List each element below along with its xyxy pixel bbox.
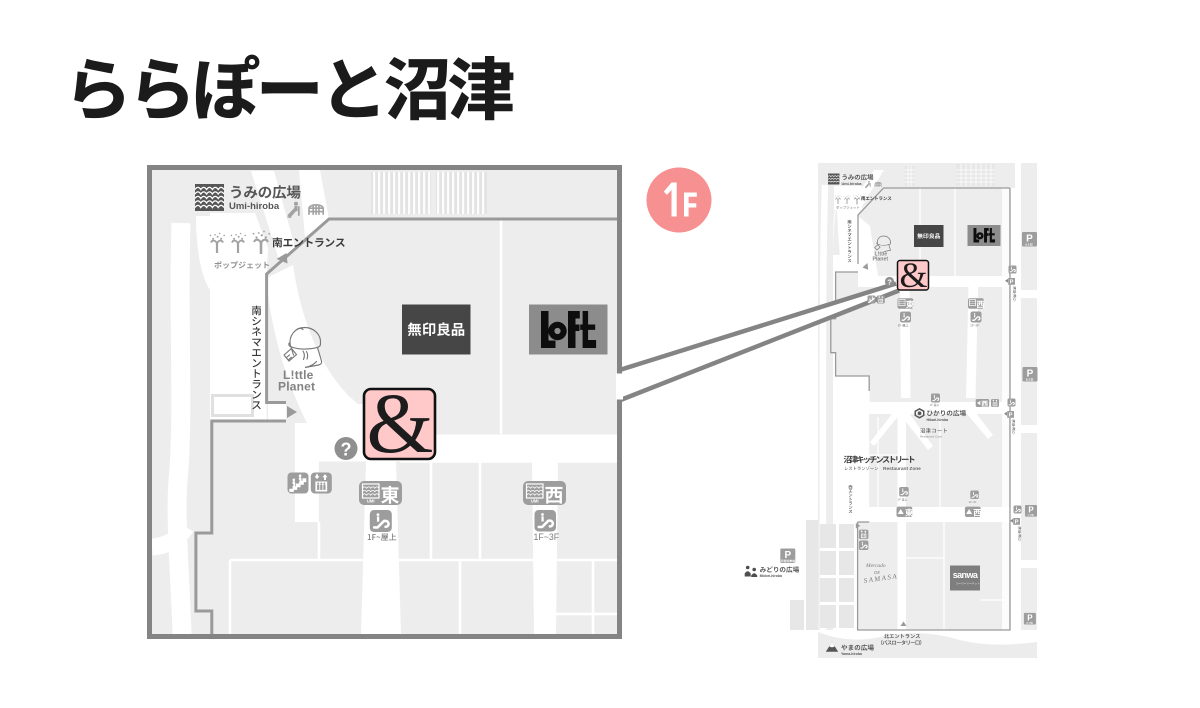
svg-text:UMI: UMI (367, 499, 375, 504)
svg-text:P: P (1026, 234, 1033, 245)
svg-text:sanwa: sanwa (953, 570, 979, 580)
svg-text:P: P (1009, 412, 1013, 418)
svg-text:UMI: UMI (531, 499, 539, 504)
svg-text:P: P (1027, 369, 1034, 380)
svg-text:P: P (1010, 279, 1014, 285)
svg-text:P: P (1028, 506, 1034, 515)
svg-text:&: & (367, 375, 434, 471)
svg-text:1F-3F: 1F-3F (970, 324, 980, 328)
svg-text:1F~3F: 1F~3F (534, 532, 560, 542)
svg-text:&: & (899, 255, 927, 295)
svg-text:?: ? (887, 278, 892, 287)
svg-text:P: P (1015, 519, 1019, 525)
svg-text:Yama-hiroba: Yama-hiroba (841, 652, 862, 656)
svg-text:Umi-hiroba: Umi-hiroba (229, 201, 280, 212)
svg-text:P: P (1027, 614, 1033, 623)
svg-text:?: ? (341, 440, 352, 460)
svg-text:Umi-hiroba: Umi-hiroba (842, 182, 863, 186)
svg-text:Midori-hiroba: Midori-hiroba (760, 574, 782, 578)
svg-text:Hikari-hiroba: Hikari-hiroba (927, 418, 949, 422)
svg-text:1F-3F: 1F-3F (969, 500, 977, 504)
svg-text:Planet: Planet (278, 380, 315, 394)
svg-text:Restaurant Court: Restaurant Court (920, 435, 942, 439)
svg-text:Restaurant Zone: Restaurant Zone (883, 466, 921, 472)
svg-text:P: P (784, 550, 791, 561)
svg-text:Planet: Planet (873, 257, 889, 263)
svg-text:Mercado: Mercado (865, 563, 886, 569)
